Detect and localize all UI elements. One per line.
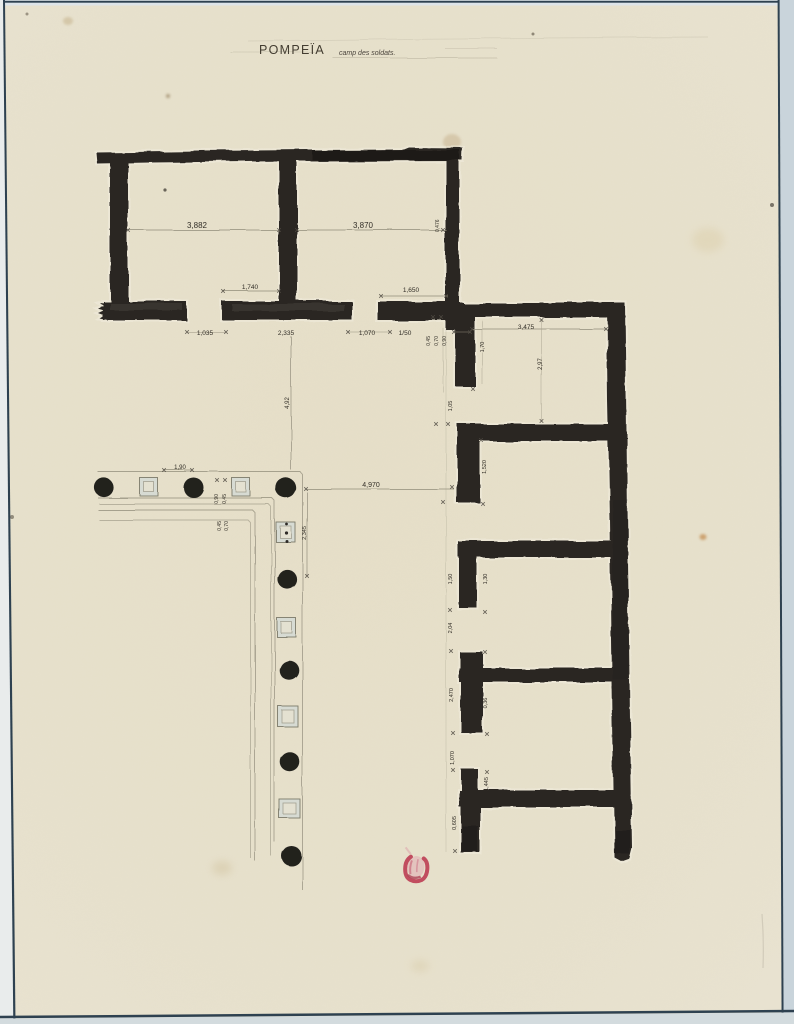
svg-text:0,70: 0,70 (434, 336, 440, 346)
svg-text:3,475: 3,475 (518, 324, 535, 331)
svg-text:1,30: 1,30 (483, 574, 489, 585)
svg-text:0,605: 0,605 (452, 816, 458, 830)
svg-text:POMPEÏA: POMPEÏA (259, 43, 325, 57)
svg-text:4,92: 4,92 (285, 397, 291, 409)
svg-text:0,45: 0,45 (222, 494, 228, 504)
svg-text:1,070: 1,070 (450, 751, 456, 765)
svg-text:0,36: 0,36 (483, 698, 489, 709)
svg-text:0,90: 0,90 (442, 336, 448, 346)
svg-text:0,45: 0,45 (217, 521, 223, 531)
svg-text:1/50: 1/50 (399, 330, 412, 337)
svg-text:1,05: 1,05 (448, 401, 454, 412)
svg-text:1,070: 1,070 (359, 330, 376, 337)
svg-text:0,45: 0,45 (426, 336, 432, 346)
svg-text:4,970: 4,970 (362, 482, 380, 489)
svg-text:0,476: 0,476 (435, 219, 441, 232)
svg-text:3,882: 3,882 (187, 221, 208, 230)
svg-text:1,520: 1,520 (482, 460, 488, 474)
svg-text:0,70: 0,70 (224, 521, 230, 531)
svg-text:2,04: 2,04 (448, 623, 454, 634)
svg-text:1,90: 1,90 (174, 465, 186, 471)
svg-text:1,445: 1,445 (484, 777, 490, 791)
svg-text:1,740: 1,740 (242, 284, 259, 291)
svg-text:1,50: 1,50 (448, 574, 454, 585)
svg-text:1,70: 1,70 (480, 342, 486, 353)
svg-text:2,97: 2,97 (538, 358, 544, 370)
svg-text:3,870: 3,870 (353, 221, 374, 230)
svg-text:1,035: 1,035 (197, 330, 214, 337)
svg-text:camp des soldats.: camp des soldats. (339, 50, 395, 57)
svg-text:2,345: 2,345 (302, 526, 308, 540)
svg-text:2,470: 2,470 (449, 688, 455, 702)
svg-text:2,335: 2,335 (278, 330, 295, 337)
svg-text:1,650: 1,650 (403, 287, 420, 294)
svg-text:0,90: 0,90 (214, 494, 220, 504)
